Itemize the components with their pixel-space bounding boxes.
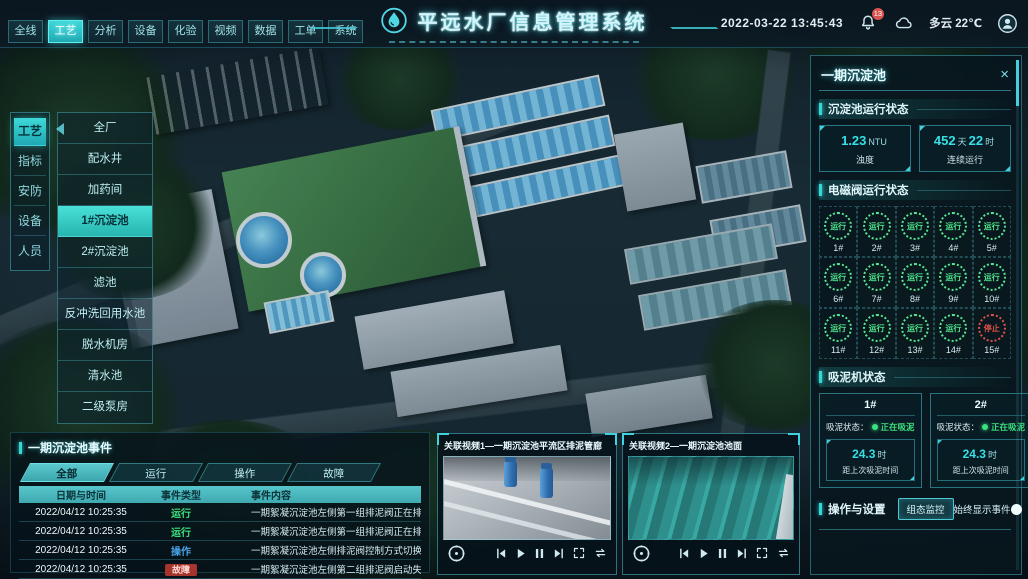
title-decoration — [389, 41, 639, 43]
mud-machine-cards: 1# 吸泥状态： 正在吸泥 24.3时 距上次吸泥时间 2# 吸泥状态： 正在吸… — [819, 393, 1011, 488]
event-type: 故障 — [143, 563, 219, 576]
valve-id: 4# — [935, 243, 971, 253]
water-drop-logo-icon — [381, 7, 408, 34]
valve-status-ring: 运行 — [939, 314, 967, 342]
video-controls — [443, 540, 611, 566]
valve-6[interactable]: 运行6# — [819, 257, 857, 308]
table-row[interactable]: 2022/04/12 10:25:35 运行 一期絮凝沉淀池左侧第一组排泥阀正在… — [19, 503, 421, 522]
section-title: 沉淀池运行状态 — [828, 101, 909, 117]
events-tab-all[interactable]: 全部 — [20, 463, 114, 482]
valve-3[interactable]: 运行3# — [896, 206, 934, 257]
nav-tab-full-line[interactable]: 全线 — [8, 20, 43, 43]
uptime-card: 452天22时 连续运行 — [919, 125, 1011, 172]
uptime-days-value: 452 — [934, 133, 956, 148]
valve-status-ring: 运行 — [901, 263, 929, 291]
notifications-button[interactable]: 13 — [857, 12, 879, 34]
events-tab-fault[interactable]: 故障 — [287, 463, 381, 482]
valve-id: 13# — [897, 345, 933, 355]
pan-control-icon[interactable] — [632, 544, 651, 563]
valve-id: 15# — [974, 345, 1010, 355]
event-type: 操作 — [143, 543, 219, 558]
mud-machine-id: 1# — [826, 399, 915, 416]
valve-id: 11# — [820, 345, 856, 355]
loop-icon[interactable] — [594, 547, 607, 559]
valve-status-ring: 运行 — [824, 314, 852, 342]
detail-panel: 一期沉淀池 × 沉淀池运行状态 1.23NTU 浊度 452天22时 连续运行 … — [810, 55, 1022, 575]
section-mud-header: 吸泥机状态 — [819, 367, 1011, 387]
fullscreen-icon[interactable] — [573, 547, 585, 559]
mud-time-unit: 时 — [877, 450, 886, 460]
video-title: 关联视频1—一期沉淀池平流区排泥管廊 — [444, 439, 611, 452]
nav-tab-data[interactable]: 数据 — [248, 20, 283, 43]
mud-time-value: 24.3 — [963, 447, 986, 461]
datetime-display: 2022-03-22 13:45:43 — [721, 16, 843, 30]
pause-icon[interactable] — [718, 548, 727, 559]
side-tab-personnel[interactable]: 人员 — [14, 238, 46, 265]
weather-button[interactable] — [893, 12, 915, 34]
turbidity-unit: NTU — [868, 137, 887, 147]
events-tabs: 全部 运行 操作 故障 — [25, 463, 419, 482]
mud-status-line: 吸泥状态： 正在吸泥 — [937, 421, 1026, 433]
avatar-icon — [997, 13, 1018, 34]
notification-badge: 13 — [872, 8, 884, 20]
col-event-type: 事件类型 — [143, 487, 219, 502]
section-valves-header: 电磁阀运行状态 — [819, 180, 1011, 200]
menu-item-backwash-reuse-tank[interactable]: 反冲洗回用水池 — [58, 299, 152, 330]
valve-id: 5# — [974, 243, 1010, 253]
valve-7[interactable]: 运行7# — [857, 257, 895, 308]
process-area-menu: 全厂 配水井 加药间 1#沉淀池 2#沉淀池 滤池 反冲洗回用水池 脱水机房 清… — [57, 112, 153, 424]
pan-control-icon[interactable] — [447, 544, 466, 563]
mud-time-unit: 时 — [988, 450, 997, 460]
events-header: 一期沉淀池事件 — [11, 433, 429, 458]
header-right: 2022-03-22 13:45:43 13 多云 22℃ — [721, 12, 1018, 34]
section-bullet — [819, 103, 822, 115]
uptime-days-unit: 天 — [958, 137, 967, 147]
section-run-status-header: 沉淀池运行状态 — [819, 99, 1011, 119]
mud-status-label: 吸泥状态： — [826, 421, 869, 433]
valve-status-ring: 运行 — [824, 263, 852, 291]
valve-12[interactable]: 运行12# — [857, 308, 895, 359]
valve-id: 8# — [897, 294, 933, 304]
section-title: 吸泥机状态 — [828, 369, 886, 385]
valve-status-ring: 运行 — [824, 212, 852, 240]
pause-icon[interactable] — [535, 548, 544, 559]
section-line — [917, 109, 1012, 110]
video-feed[interactable] — [628, 456, 794, 540]
mud-status-label: 吸泥状态： — [937, 421, 980, 433]
table-row[interactable]: 2022/04/12 10:25:35 故障 一期絮凝沉淀池左侧第二组排泥阀启动… — [19, 560, 421, 579]
valve-id: 2# — [858, 243, 894, 253]
status-dot-icon — [872, 424, 878, 430]
col-datetime: 日期与时间 — [19, 487, 143, 502]
events-title: 一期沉淀池事件 — [28, 439, 112, 456]
nav-tab-lab[interactable]: 化验 — [168, 20, 203, 43]
user-button[interactable] — [996, 12, 1018, 34]
valve-grid: 运行1# 运行2# 运行3# 运行4# 运行5# 运行6# 运行7# 运行8# … — [819, 206, 1011, 359]
video-controls — [628, 540, 794, 566]
side-tab-equipment[interactable]: 设备 — [14, 208, 46, 236]
col-event-content: 事件内容 — [219, 487, 421, 502]
video-title: 关联视频2—一期沉淀池池面 — [629, 439, 794, 452]
mud-machine-card-2: 2# 吸泥状态： 正在吸泥 24.3时 距上次吸泥时间 — [930, 393, 1028, 488]
app-title-area: 平远水厂信息管理系统 — [319, 6, 710, 35]
video-panel-2: 关联视频2—一期沉淀池池面 — [622, 433, 800, 575]
left-category-tabs: 工艺 指标 安防 设备 人员 — [10, 112, 50, 271]
mud-time-box: 24.3时 距上次吸泥时间 — [826, 439, 915, 481]
skip-forward-icon[interactable] — [553, 548, 564, 559]
valve-15[interactable]: 停止15# — [973, 308, 1011, 359]
turbidity-value: 1.23 — [841, 133, 866, 148]
menu-item-secondary-pump-house[interactable]: 二级泵房 — [58, 392, 152, 423]
section-bullet — [819, 371, 822, 383]
panel-header: 一期沉淀池 × — [819, 63, 1011, 91]
nav-tab-process[interactable]: 工艺 — [48, 20, 83, 43]
nav-tab-analysis[interactable]: 分析 — [88, 20, 123, 43]
video-scene-pump — [540, 468, 553, 498]
section-bullet — [19, 442, 22, 454]
section-line — [894, 377, 1012, 378]
event-content: 一期絮凝沉淀池左侧第一组排泥阀正在排泥 — [219, 505, 421, 519]
skip-forward-icon[interactable] — [736, 548, 747, 559]
play-icon[interactable] — [516, 548, 526, 559]
loop-icon[interactable] — [777, 547, 790, 559]
top-header: 全线 工艺 分析 设备 化验 视频 数据 工单 系统 平远水厂信息管理系统 20… — [0, 0, 1028, 48]
menu-item-filter-tank[interactable]: 滤池 — [58, 268, 152, 299]
valve-id: 1# — [820, 243, 856, 253]
valve-status-ring: 运行 — [863, 263, 891, 291]
event-content: 一期絮凝沉淀池左侧排泥阀控制方式切换为手动 — [219, 543, 421, 557]
status-dot-icon — [982, 424, 988, 430]
valve-id: 9# — [935, 294, 971, 304]
events-tab-run[interactable]: 运行 — [109, 463, 203, 482]
panel-scrollbar[interactable] — [1016, 60, 1019, 570]
valve-id: 3# — [897, 243, 933, 253]
valve-9[interactable]: 运行9# — [934, 257, 972, 308]
events-table-header: 日期与时间 事件类型 事件内容 — [19, 486, 421, 503]
playback-controls — [496, 547, 607, 559]
valve-8[interactable]: 运行8# — [896, 257, 934, 308]
nav-tab-video[interactable]: 视频 — [208, 20, 243, 43]
section-bullet — [819, 184, 822, 196]
mud-time-box: 24.3时 距上次吸泥时间 — [937, 439, 1026, 481]
valve-id: 14# — [935, 345, 971, 355]
fullscreen-icon[interactable] — [756, 547, 768, 559]
run-status-cards: 1.23NTU 浊度 452天22时 连续运行 — [819, 125, 1011, 172]
valve-11[interactable]: 运行11# — [819, 308, 857, 359]
video-scene-pump — [504, 461, 517, 487]
close-icon[interactable]: × — [1000, 67, 1009, 82]
valve-status-ring: 运行 — [901, 314, 929, 342]
valve-14[interactable]: 运行14# — [934, 308, 972, 359]
valve-status-ring: 运行 — [978, 212, 1006, 240]
valve-id: 12# — [858, 345, 894, 355]
valve-5[interactable]: 运行5# — [973, 206, 1011, 257]
valve-id: 6# — [820, 294, 856, 304]
menu-item-dosing-room[interactable]: 加药间 — [58, 175, 152, 206]
panel-title: 一期沉淀池 — [821, 65, 886, 84]
valve-id: 7# — [858, 294, 894, 304]
operations-row: 操作与设置 组态监控 始终显示事件： — [819, 498, 1011, 530]
section-title: 操作与设置 — [828, 501, 886, 517]
mud-status-value: 正在吸泥 — [991, 421, 1025, 433]
section-line — [917, 190, 1012, 191]
menu-item-dewatering-room[interactable]: 脱水机房 — [58, 330, 152, 361]
nav-tab-equipment[interactable]: 设备 — [128, 20, 163, 43]
turbidity-card: 1.23NTU 浊度 — [819, 125, 911, 172]
app-root: 全线 工艺 分析 设备 化验 视频 数据 工单 系统 平远水厂信息管理系统 20… — [0, 0, 1028, 579]
mud-machine-id: 2# — [937, 399, 1026, 416]
valve-status-ring: 运行 — [939, 263, 967, 291]
event-time: 2022/04/12 10:25:35 — [19, 545, 143, 556]
menu-item-distribution-well[interactable]: 配水井 — [58, 144, 152, 175]
scada-monitor-button[interactable]: 组态监控 — [898, 498, 954, 520]
main-nav: 全线 工艺 分析 设备 化验 视频 数据 工单 系统 — [8, 20, 363, 43]
page-title: 平远水厂信息管理系统 — [418, 6, 648, 35]
events-table: 日期与时间 事件类型 事件内容 2022/04/12 10:25:35 运行 一… — [19, 486, 421, 579]
valve-13[interactable]: 运行13# — [896, 308, 934, 359]
event-content: 一期絮凝沉淀池左侧第一组排泥阀正在排泥 — [219, 524, 421, 538]
valve-id: 10# — [974, 294, 1010, 304]
mud-time-label: 距上次吸泥时间 — [940, 465, 1023, 476]
valve-status-ring: 运行 — [978, 263, 1006, 291]
events-panel: 一期沉淀池事件 全部 运行 操作 故障 日期与时间 事件类型 事件内容 2022… — [10, 432, 430, 573]
side-tab-indicators[interactable]: 指标 — [14, 148, 46, 176]
event-time: 2022/04/12 10:25:35 — [19, 507, 143, 518]
menu-item-clear-water-tank[interactable]: 清水池 — [58, 361, 152, 392]
event-time: 2022/04/12 10:25:35 — [19, 526, 143, 537]
menu-item-whole-plant[interactable]: 全厂 — [58, 113, 152, 144]
table-row[interactable]: 2022/04/12 10:25:35 运行 一期絮凝沉淀池左侧第一组排泥阀正在… — [19, 522, 421, 541]
events-tab-operate[interactable]: 操作 — [198, 463, 292, 482]
valve-4[interactable]: 运行4# — [934, 206, 972, 257]
valve-status-ring: 停止 — [978, 314, 1006, 342]
valve-10[interactable]: 运行10# — [973, 257, 1011, 308]
video-scene-shade — [629, 457, 793, 539]
play-icon[interactable] — [699, 548, 709, 559]
section-title: 电磁阀运行状态 — [828, 182, 909, 198]
playback-controls — [679, 547, 790, 559]
weather-text: 多云 22℃ — [929, 15, 982, 31]
valve-1[interactable]: 运行1# — [819, 206, 857, 257]
mud-status-line: 吸泥状态： 正在吸泥 — [826, 421, 915, 433]
section-bullet — [819, 503, 822, 515]
valve-status-ring: 运行 — [939, 212, 967, 240]
event-content: 一期絮凝沉淀池左侧第二组排泥阀启动失败 — [219, 562, 421, 576]
skip-back-icon[interactable] — [496, 548, 507, 559]
valve-status-ring: 运行 — [901, 212, 929, 240]
valve-2[interactable]: 运行2# — [857, 206, 895, 257]
uptime-hours-value: 22 — [969, 133, 983, 148]
scrollbar-thumb[interactable] — [1016, 60, 1019, 106]
menu-item-sedimentation-tank-1[interactable]: 1#沉淀池 — [58, 206, 152, 237]
cloud-icon — [894, 13, 914, 33]
toggle-knob — [1011, 504, 1022, 515]
menu-item-sedimentation-tank-2[interactable]: 2#沉淀池 — [58, 237, 152, 268]
mud-time-label: 距上次吸泥时间 — [829, 465, 912, 476]
event-type: 运行 — [143, 505, 219, 520]
skip-back-icon[interactable] — [679, 548, 690, 559]
video-scene-wall — [444, 457, 610, 481]
table-row[interactable]: 2022/04/12 10:25:35 操作 一期絮凝沉淀池左侧排泥阀控制方式切… — [19, 541, 421, 560]
valve-status-ring: 运行 — [863, 314, 891, 342]
video-panel-1: 关联视频1—一期沉淀池平流区排泥管廊 — [437, 433, 617, 575]
event-type: 运行 — [143, 524, 219, 539]
mud-time-value: 24.3 — [852, 447, 875, 461]
side-tab-process[interactable]: 工艺 — [14, 118, 46, 146]
uptime-label: 连续运行 — [922, 153, 1008, 166]
event-time: 2022/04/12 10:25:35 — [19, 564, 143, 575]
side-tab-security[interactable]: 安防 — [14, 178, 46, 206]
mud-machine-card-1: 1# 吸泥状态： 正在吸泥 24.3时 距上次吸泥时间 — [819, 393, 922, 488]
uptime-hours-unit: 时 — [985, 137, 994, 147]
valve-status-ring: 运行 — [863, 212, 891, 240]
mud-status-value: 正在吸泥 — [881, 421, 915, 433]
video-feed[interactable] — [443, 456, 611, 540]
turbidity-label: 浊度 — [822, 153, 908, 166]
